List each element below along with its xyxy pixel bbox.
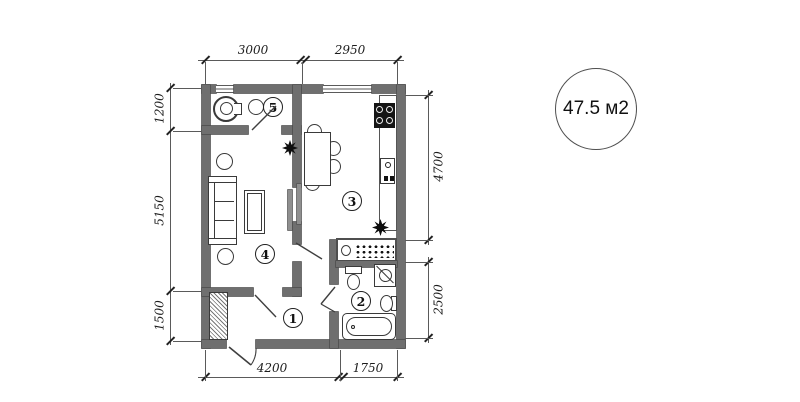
dim-ext-line — [302, 62, 303, 84]
total-area-badge: 47.5 м2 — [555, 68, 637, 150]
burner-2 — [386, 106, 393, 113]
wall-living-hall-b — [283, 288, 301, 296]
burner-3 — [376, 117, 383, 124]
door-leaf-kitchen — [296, 243, 322, 259]
wall-living-kitchen-a — [293, 85, 301, 187]
room-circle-3: 3 — [342, 191, 362, 211]
dim-line-bottom — [198, 377, 404, 378]
sofa — [208, 176, 237, 245]
dim-line-right-1 — [428, 90, 429, 245]
dim-label-top-1: 3000 — [223, 44, 283, 57]
sofa-cushion-line-1 — [214, 201, 234, 202]
toilet-bowl-icon — [347, 274, 360, 290]
total-area-label: 47.5 м2 — [563, 98, 629, 120]
wall-bath-west-b — [330, 312, 338, 348]
dim-ext-line — [173, 291, 202, 292]
dim-label-left-1: 1200 — [154, 79, 167, 139]
sliding-door-panel-1 — [288, 190, 292, 230]
sofa-cushion-line-2 — [214, 220, 234, 221]
dim-label-left-3: 1500 — [154, 286, 167, 346]
door-leaf-bathroom-b — [321, 304, 335, 312]
dim-ext-line — [397, 62, 398, 84]
window-kitchen — [323, 85, 372, 93]
kitchen-sink-icon — [380, 158, 395, 184]
room-circle-5: 5 — [263, 97, 283, 117]
wardrobe — [209, 292, 228, 340]
room-circle-2: 2 — [351, 291, 371, 311]
wall-right — [397, 85, 405, 348]
kitchen-sink-drain-2 — [390, 176, 394, 181]
wall-top-mid — [234, 85, 323, 93]
dim-ext-line — [405, 262, 433, 263]
coffee-table-inner — [247, 193, 262, 231]
dim-label-top-2: 2950 — [320, 44, 380, 57]
burner-4 — [386, 117, 393, 124]
stove-icon — [374, 103, 395, 128]
door-leaf-bathroom-a — [321, 287, 335, 304]
dim-label-right-1: 4700 — [433, 137, 446, 197]
dim-ext-line — [405, 240, 433, 241]
vent-hatch-icon — [341, 245, 351, 256]
dim-ext-line — [173, 88, 202, 89]
stool-bottom — [217, 248, 234, 265]
dim-ext-line — [405, 95, 433, 96]
dim-ext-line — [405, 338, 433, 339]
burner-1 — [376, 106, 383, 113]
floor-plan-screenshot: { "plan": { "area_label": "47.5 м2", "ro… — [0, 0, 800, 402]
dim-ext-line — [173, 131, 202, 132]
apartment-floor-plan: 1 2 3 4 5 3000 2950 4200 1750 1200 5150 … — [0, 0, 800, 402]
sofa-arm-bottom — [209, 238, 236, 239]
sink-icon-bathroom — [380, 295, 393, 312]
dim-line-right-2 — [428, 257, 429, 343]
sink-icon-room5 — [248, 99, 264, 115]
dim-label-right-2: 2500 — [433, 270, 446, 330]
toilet-bowl-room5 — [220, 102, 233, 115]
dim-ext-line — [173, 341, 202, 342]
sliding-door-panel-2 — [297, 184, 301, 224]
wall-living-kitchen-b — [293, 222, 301, 244]
window-room5 — [216, 85, 234, 93]
dim-line-left — [170, 83, 171, 345]
door-leaf-living — [255, 295, 276, 317]
dim-label-bottom-2: 1750 — [338, 362, 398, 375]
sofa-back — [214, 182, 215, 238]
wall-bottom-left — [202, 340, 226, 348]
dim-label-bottom-1: 4200 — [242, 362, 302, 375]
wall-room5-bottom-a — [202, 126, 248, 134]
toilet-tank-icon — [345, 266, 362, 274]
dim-ext-line — [205, 62, 206, 84]
room-circle-1: 1 — [283, 308, 303, 328]
toilet-stub-room5 — [234, 103, 242, 115]
vent-shaft-grid — [354, 243, 394, 258]
kitchen-sink-drain — [384, 176, 388, 181]
dining-table — [304, 132, 331, 186]
bathtub-drain — [351, 325, 355, 329]
dim-ext-line — [205, 350, 206, 381]
stool-top — [216, 153, 233, 170]
room-circle-4: 4 — [255, 244, 275, 264]
dim-label-left-2: 5150 — [154, 181, 167, 241]
kitchen-faucet-icon — [385, 162, 391, 168]
washing-machine-icon — [374, 264, 396, 287]
